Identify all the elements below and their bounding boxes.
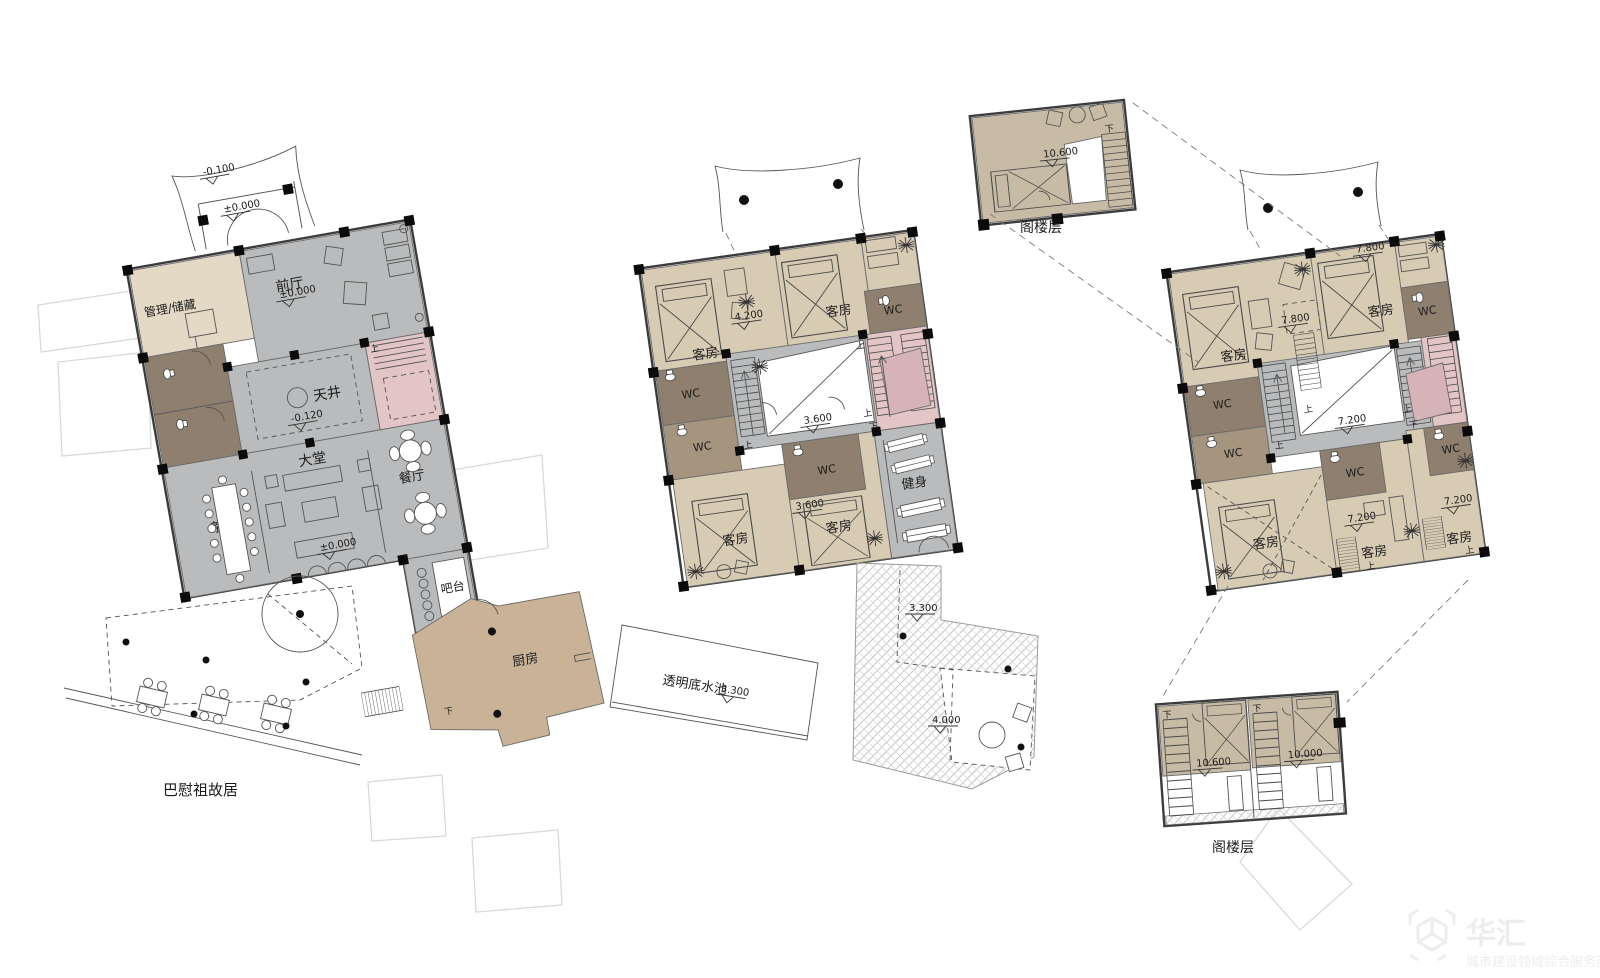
lounge-nook xyxy=(1394,236,1447,288)
attic-step xyxy=(1227,776,1243,811)
room-label-wc: WC xyxy=(1223,446,1244,462)
terrace-table xyxy=(196,685,231,725)
second-floor-plan: 客房 4.200 客房 WC WC WC 3.600 上 上 上 下 客房 WC… xyxy=(633,225,963,592)
terrace-round-table xyxy=(979,722,1005,748)
stair-up-label: 上 xyxy=(1402,404,1412,416)
roof-terrace: 上 3.300 4.000 xyxy=(780,563,1038,789)
level-marker-porch: ±0.000 xyxy=(219,198,263,223)
room-label-wc: WC xyxy=(1212,397,1233,413)
kitchen-stair xyxy=(361,686,403,716)
watermark: 华汇 城市建设领域综合服务商 xyxy=(1410,910,1600,970)
stair-up-label: 上 xyxy=(863,407,873,419)
attic-floor-label: 阁楼层 xyxy=(1212,840,1254,856)
entry-canopy xyxy=(171,145,316,253)
stair-up-label: 上 xyxy=(1303,403,1313,415)
stair-up-label: 上 xyxy=(855,340,865,352)
level-marker-canopy: -0.100 xyxy=(198,162,237,186)
room-label-wc: WC xyxy=(817,462,838,478)
stair-down-label: 下 xyxy=(1104,124,1114,135)
room-label-wc: WC xyxy=(1417,303,1438,319)
stair-up-label: 上 xyxy=(369,343,380,355)
room-label-wc: WC xyxy=(1441,441,1462,457)
watermark-brand: 华汇 xyxy=(1466,917,1526,952)
plan-drawing-svg: -0.100 ±0.000 管理/储藏 前厅 ±0.000 天井 -0.120 … xyxy=(0,0,1600,978)
site-name-label: 巴慰祖故居 xyxy=(163,781,238,799)
watermark-tagline: 城市建设领域综合服务商 xyxy=(1466,954,1600,970)
ground-terrace xyxy=(64,576,362,765)
room-label-wc: WC xyxy=(1345,465,1366,481)
stair-up-label: 上 xyxy=(1274,440,1284,452)
level-text: 3.300 xyxy=(909,603,938,614)
attic-plan-lower: 10.600 10.000 下 下 xyxy=(1156,691,1352,826)
attic-floor-label: 阁楼层 xyxy=(1020,220,1062,236)
third-floor-canopy xyxy=(1240,162,1390,252)
pool: 透明底水池 3.300 xyxy=(610,625,818,740)
attic-plan-upper: 10.600 下 xyxy=(967,100,1136,233)
stair-down-label: 下 xyxy=(1252,704,1262,715)
stair-up-label: 上 xyxy=(1366,560,1376,572)
room-label-wc: WC xyxy=(692,439,713,455)
room-label-wc: WC xyxy=(681,386,702,402)
watermark-logo-icon xyxy=(1410,910,1454,960)
stair-down-label: 下 xyxy=(1408,420,1418,431)
lounge-nook xyxy=(861,232,921,291)
stair-up-label: 上 xyxy=(743,439,753,451)
level-text: 4.000 xyxy=(932,715,961,726)
ground-floor-plan: -0.100 ±0.000 管理/储藏 前厅 ±0.000 天井 -0.120 … xyxy=(107,110,609,797)
stair-up-label: 上 xyxy=(1464,544,1474,556)
terrace-table xyxy=(134,677,169,717)
stair-down-label: 下 xyxy=(1162,710,1172,721)
attic-step xyxy=(1317,766,1333,801)
floor-plan-sheet: -0.100 ±0.000 管理/储藏 前厅 ±0.000 天井 -0.120 … xyxy=(0,0,1600,978)
third-floor-plan: 客房 7.800 上 客房 7.800 WC WC WC 7.200 上 上 下… xyxy=(1161,229,1490,596)
stair-down-label: 下 xyxy=(443,706,454,717)
